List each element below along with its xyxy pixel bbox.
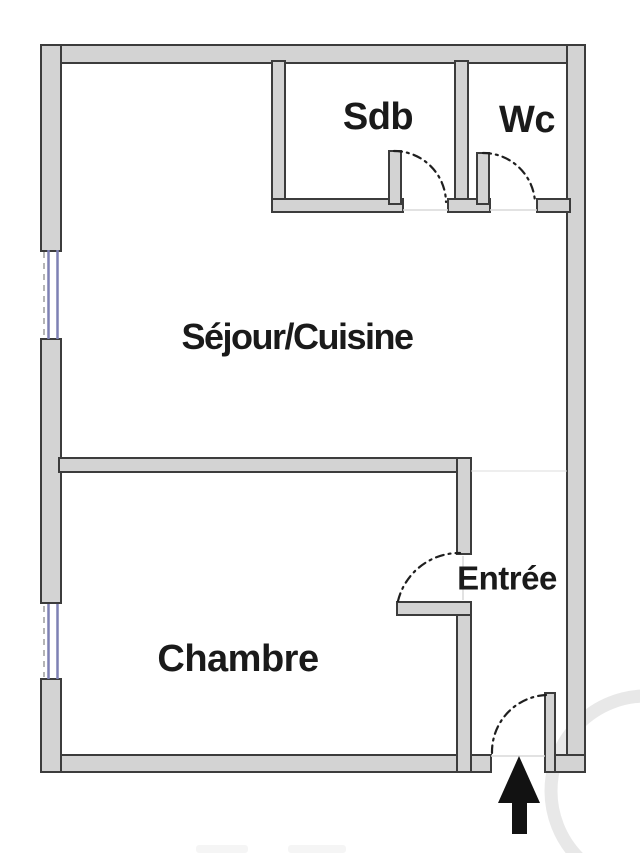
- door-arc-wc: [483, 153, 535, 202]
- room-label-entree: Entrée: [457, 562, 557, 595]
- door-thresholds: [403, 210, 567, 756]
- door-leaf-sdb: [389, 151, 401, 204]
- wall-sdb-bottom: [272, 199, 403, 212]
- wall-exterior-top: [41, 45, 585, 63]
- door-leaf-entree: [397, 602, 471, 615]
- room-label-wc: Wc: [499, 101, 555, 139]
- wall-exterior-left-lower: [41, 679, 61, 772]
- door-arc-entree: [398, 553, 460, 601]
- wall-exterior-left-upper: [41, 45, 61, 251]
- room-label-chambre: Chambre: [157, 640, 318, 678]
- room-label-sdb: Sdb: [343, 98, 413, 136]
- watermark-ring-icon: [551, 696, 640, 853]
- window-left-lower: [44, 604, 58, 679]
- wall-sejour-sdb: [272, 61, 285, 212]
- wall-sejour-chambre: [59, 458, 471, 472]
- wall-sdb-wc: [455, 61, 468, 204]
- watermark-text-smudge: [196, 845, 346, 853]
- door-leaf-wc: [477, 153, 489, 204]
- wall-exterior-bottom-left: [41, 755, 491, 772]
- entrance-arrow-icon: [498, 756, 540, 834]
- wall-chambre-entree-upper: [457, 458, 471, 554]
- floorplan: Sdb Wc Séjour/Cuisine Entrée Chambre: [0, 0, 640, 853]
- room-label-sejour-cuisine: Séjour/Cuisine: [181, 319, 412, 355]
- wall-chambre-entree-lower: [457, 602, 471, 772]
- wall-exterior-right: [567, 45, 585, 772]
- door-leaf-front: [545, 693, 555, 772]
- window-left-upper: [44, 250, 58, 339]
- door-arc-front: [492, 695, 546, 753]
- wall-wc-bottom: [537, 199, 570, 212]
